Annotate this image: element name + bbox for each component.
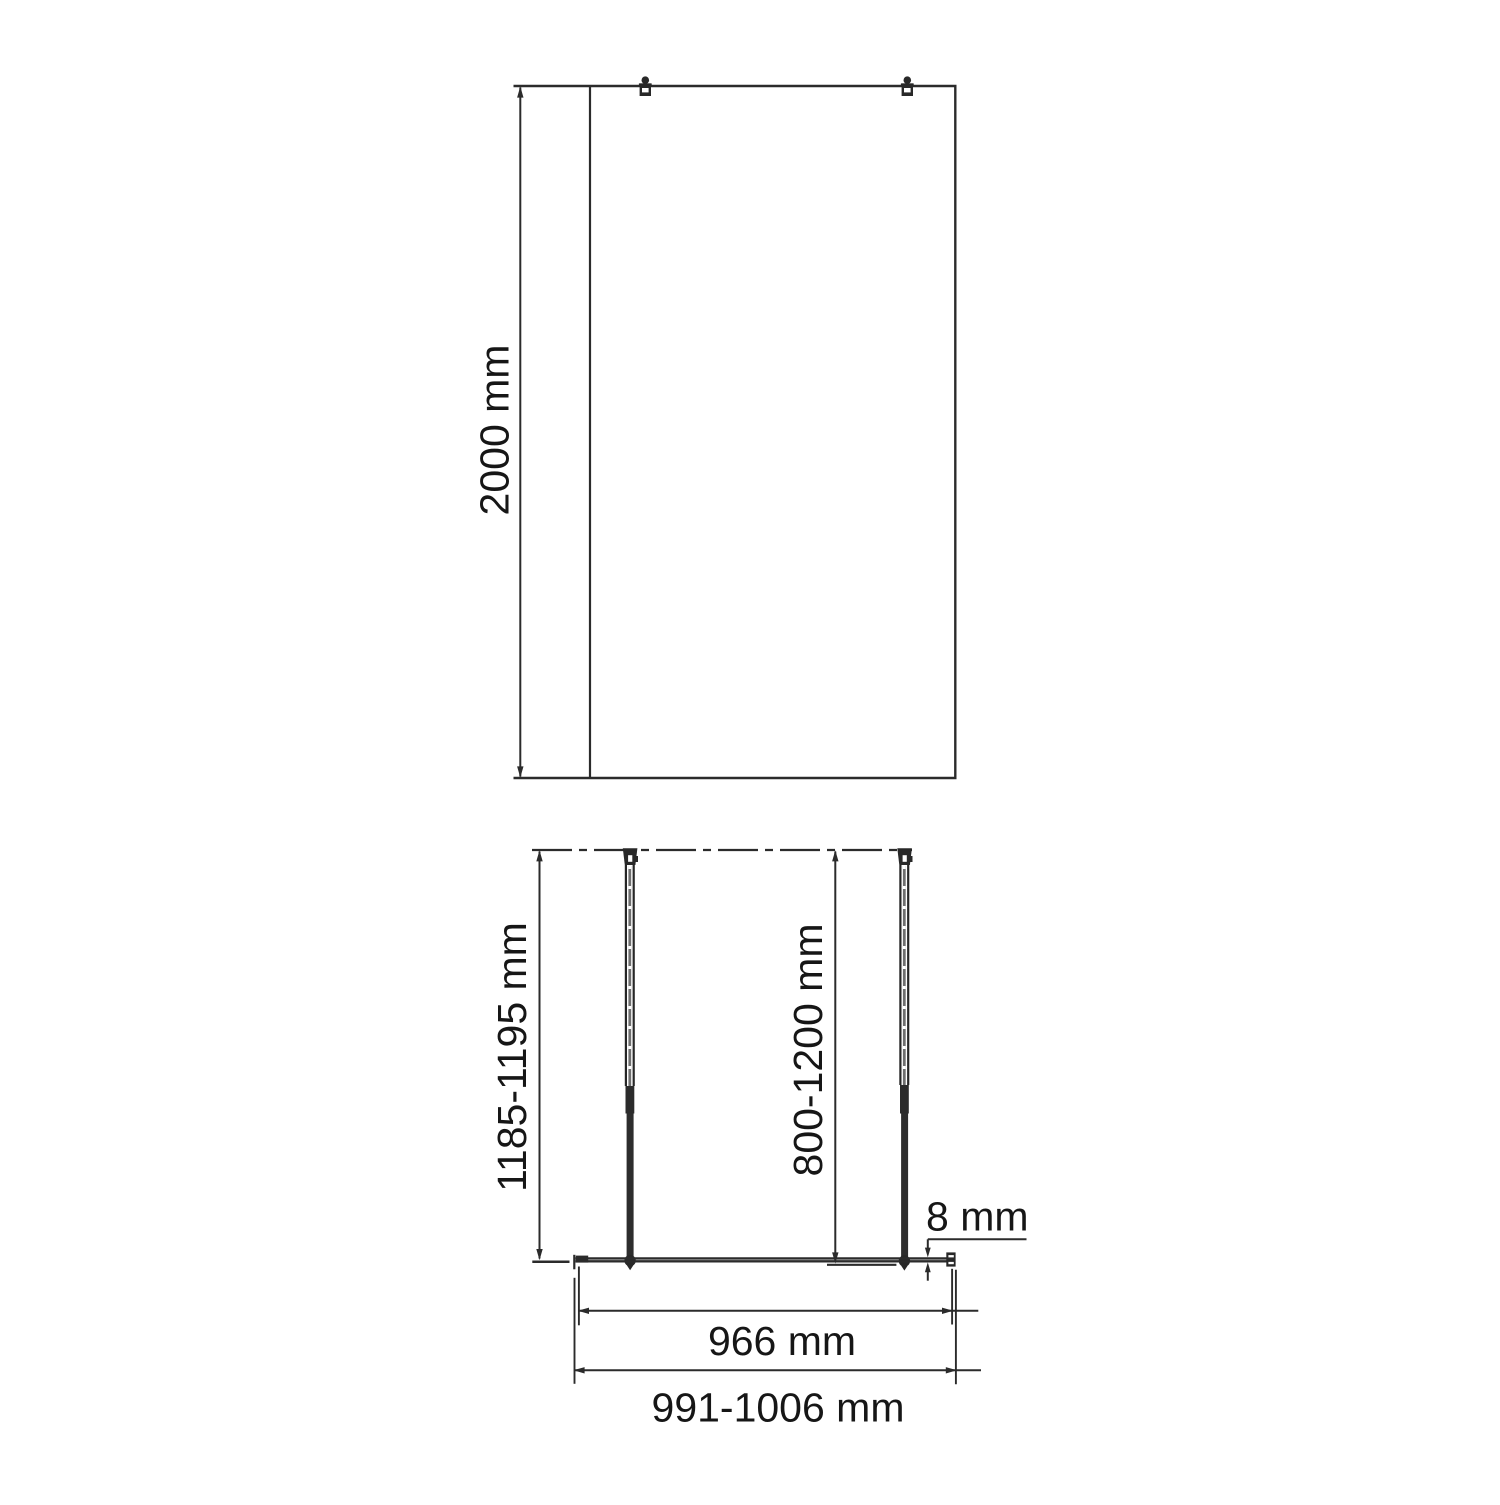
svg-text:1185-1195 mm: 1185-1195 mm: [489, 922, 535, 1192]
svg-text:991-1006 mm: 991-1006 mm: [652, 1385, 905, 1431]
svg-text:8 mm: 8 mm: [926, 1194, 1029, 1240]
svg-text:966 mm: 966 mm: [708, 1318, 856, 1364]
svg-text:2000 mm: 2000 mm: [472, 345, 518, 516]
svg-text:800-1200 mm: 800-1200 mm: [785, 924, 831, 1177]
